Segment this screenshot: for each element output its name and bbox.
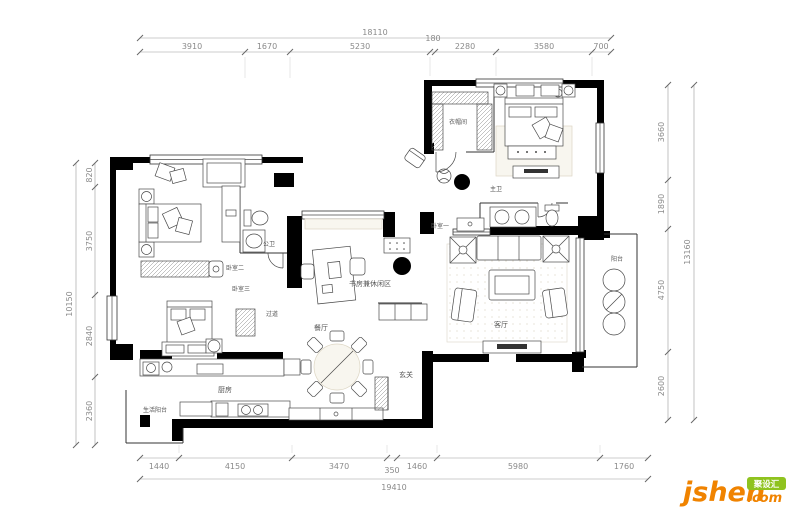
dim-right-4: 2600 bbox=[657, 376, 666, 396]
label-study: 书房兼休闲区 bbox=[349, 279, 391, 288]
extension-lines-bottom bbox=[179, 445, 600, 453]
label-master-bath: 主卫 bbox=[490, 185, 502, 193]
dimension-chain-bottom: 1440 4150 3470 350 1460 5980 1760 19410 bbox=[137, 445, 651, 492]
dim-left-2: 3750 bbox=[85, 231, 94, 251]
dim-bottom-3: 3470 bbox=[329, 462, 349, 471]
dim-bottom-4: 350 bbox=[384, 466, 399, 475]
dim-left-1: 820 bbox=[85, 167, 94, 182]
dim-left-total: 10150 bbox=[65, 291, 74, 316]
dim-right-total: 13160 bbox=[683, 239, 692, 264]
dim-bottom-7: 1760 bbox=[614, 462, 634, 471]
dim-bottom-1: 1440 bbox=[149, 462, 169, 471]
logo-badge-text: 聚设汇 bbox=[753, 479, 780, 490]
dim-left-4: 2360 bbox=[85, 401, 94, 421]
label-kitchen: 厨房 bbox=[218, 385, 232, 394]
dimension-ticks-right bbox=[665, 82, 697, 423]
dim-top-5: 2280 bbox=[455, 42, 475, 51]
label-bedroom-2: 卧室二 bbox=[226, 264, 244, 272]
column bbox=[393, 257, 411, 275]
dim-top-1: 3910 bbox=[182, 42, 202, 51]
dim-bottom-5: 1460 bbox=[407, 462, 427, 471]
living-room-furniture bbox=[447, 236, 569, 353]
dim-top-4: 180 bbox=[425, 34, 440, 43]
label-cloakroom: 衣帽间 bbox=[449, 118, 467, 126]
dining-table-set bbox=[289, 331, 383, 420]
label-hallway: 过道 bbox=[266, 310, 278, 318]
column bbox=[454, 174, 470, 190]
dim-bottom-6: 5980 bbox=[508, 462, 528, 471]
suite-corridor-furniture bbox=[404, 147, 484, 231]
dim-top-6: 3580 bbox=[534, 42, 554, 51]
dim-top-3: 5230 bbox=[350, 42, 370, 51]
dim-bottom-2: 4150 bbox=[225, 462, 245, 471]
logo-suffix-text: .com bbox=[747, 491, 782, 506]
dim-top-total: 18110 bbox=[362, 28, 387, 37]
label-balcony: 阳台 bbox=[611, 255, 623, 263]
dim-left-3: 2840 bbox=[85, 326, 94, 346]
dimension-chain-right: 3660 1890 4750 2600 13160 bbox=[657, 82, 697, 423]
dim-right-1: 3660 bbox=[657, 122, 666, 142]
service-balcony-furniture bbox=[180, 402, 212, 416]
label-bedroom-3: 卧室三 bbox=[232, 285, 250, 293]
master-bathroom-fixtures bbox=[490, 205, 559, 227]
floor-plan-drawing: 18110 3910 1670 5230 180 2280 3580 700 bbox=[0, 0, 790, 507]
master-bedroom-furniture bbox=[494, 84, 575, 178]
bedroom2-furniture bbox=[139, 159, 245, 257]
dim-bottom-total: 19410 bbox=[381, 483, 406, 492]
dim-right-3: 4750 bbox=[657, 280, 666, 300]
dim-right-2: 1890 bbox=[657, 194, 666, 214]
hallway-washer bbox=[206, 339, 222, 353]
label-living: 客厅 bbox=[494, 320, 508, 329]
label-dining: 餐厅 bbox=[314, 323, 328, 332]
entry-furniture bbox=[375, 377, 388, 410]
label-guest-bath: 公卫 bbox=[263, 241, 275, 248]
extension-lines-top bbox=[245, 57, 592, 78]
watermark-logo: jsheh 聚设汇 .com bbox=[679, 477, 786, 507]
balcony-furniture bbox=[603, 269, 625, 335]
label-bedroom-1: 卧室一 bbox=[431, 222, 449, 230]
label-entry: 玄关 bbox=[399, 370, 413, 379]
floor-plan-page: 18110 3910 1670 5230 180 2280 3580 700 bbox=[0, 0, 790, 507]
dim-top-2: 1670 bbox=[257, 42, 277, 51]
dim-top-7: 700 bbox=[593, 42, 608, 51]
bedroom3-furniture bbox=[141, 261, 255, 356]
dimension-chain-left: 820 3750 2840 2360 10150 bbox=[65, 160, 98, 448]
dimension-chain-top: 18110 3910 1670 5230 180 2280 3580 700 bbox=[137, 28, 614, 78]
study-furniture bbox=[301, 219, 427, 320]
label-service-balcony: 生活阳台 bbox=[143, 406, 167, 414]
